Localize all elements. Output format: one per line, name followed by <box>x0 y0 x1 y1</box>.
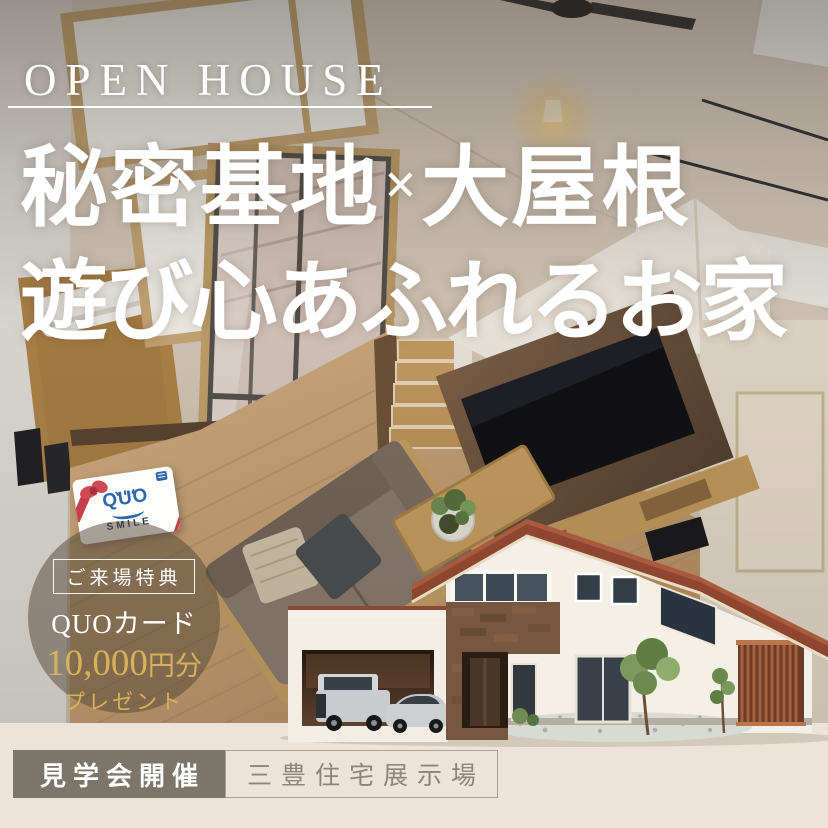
open-house-heading: OPEN HOUSE <box>24 54 393 106</box>
promo-amount-unit: 円分 <box>148 651 202 681</box>
promo-text-stack: ご来場特典 QUOカード 10,000円分 プレゼント <box>28 521 220 716</box>
promo-amount-row: 10,000円分 <box>28 642 220 685</box>
promo-action-label: プレゼント <box>28 686 220 716</box>
venue-box: 三豊住宅展示場 <box>225 750 498 798</box>
promo-item-label: QUOカード <box>28 602 220 641</box>
headline-line1: 秘密基地×大屋根 <box>20 146 691 234</box>
promo-amount: 10,000 <box>46 643 148 684</box>
headline-line1-left: 秘密基地 <box>20 141 380 238</box>
headline-times-separator: × <box>384 152 417 217</box>
venue-label: 三豊住宅展示場 <box>238 756 485 792</box>
event-box: 見学会開催 <box>13 750 225 798</box>
open-house-underline <box>8 106 432 108</box>
visitor-bonus-badge: ご来場特典 <box>53 559 194 594</box>
headline-line1-right: 大屋根 <box>421 141 691 238</box>
headline-line2: 遊び心あふれるお家 <box>20 260 785 348</box>
open-house-poster: OPEN HOUSE 秘密基地×大屋根 遊び心あふれるお家 QUO SMILE … <box>0 0 828 828</box>
wood-slat-screen <box>736 640 806 726</box>
event-label: 見学会開催 <box>33 756 205 793</box>
